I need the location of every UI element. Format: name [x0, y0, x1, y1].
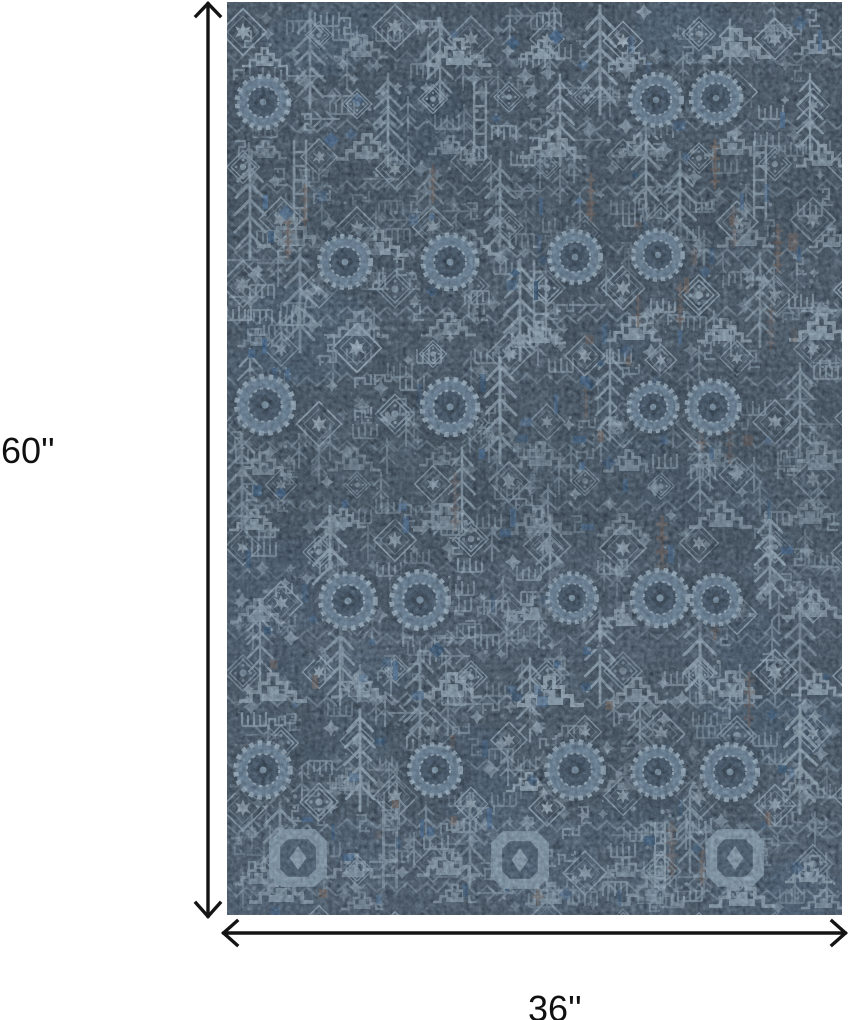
svg-text:60'': 60'': [1, 430, 55, 471]
svg-text:36'': 36'': [528, 988, 582, 1020]
